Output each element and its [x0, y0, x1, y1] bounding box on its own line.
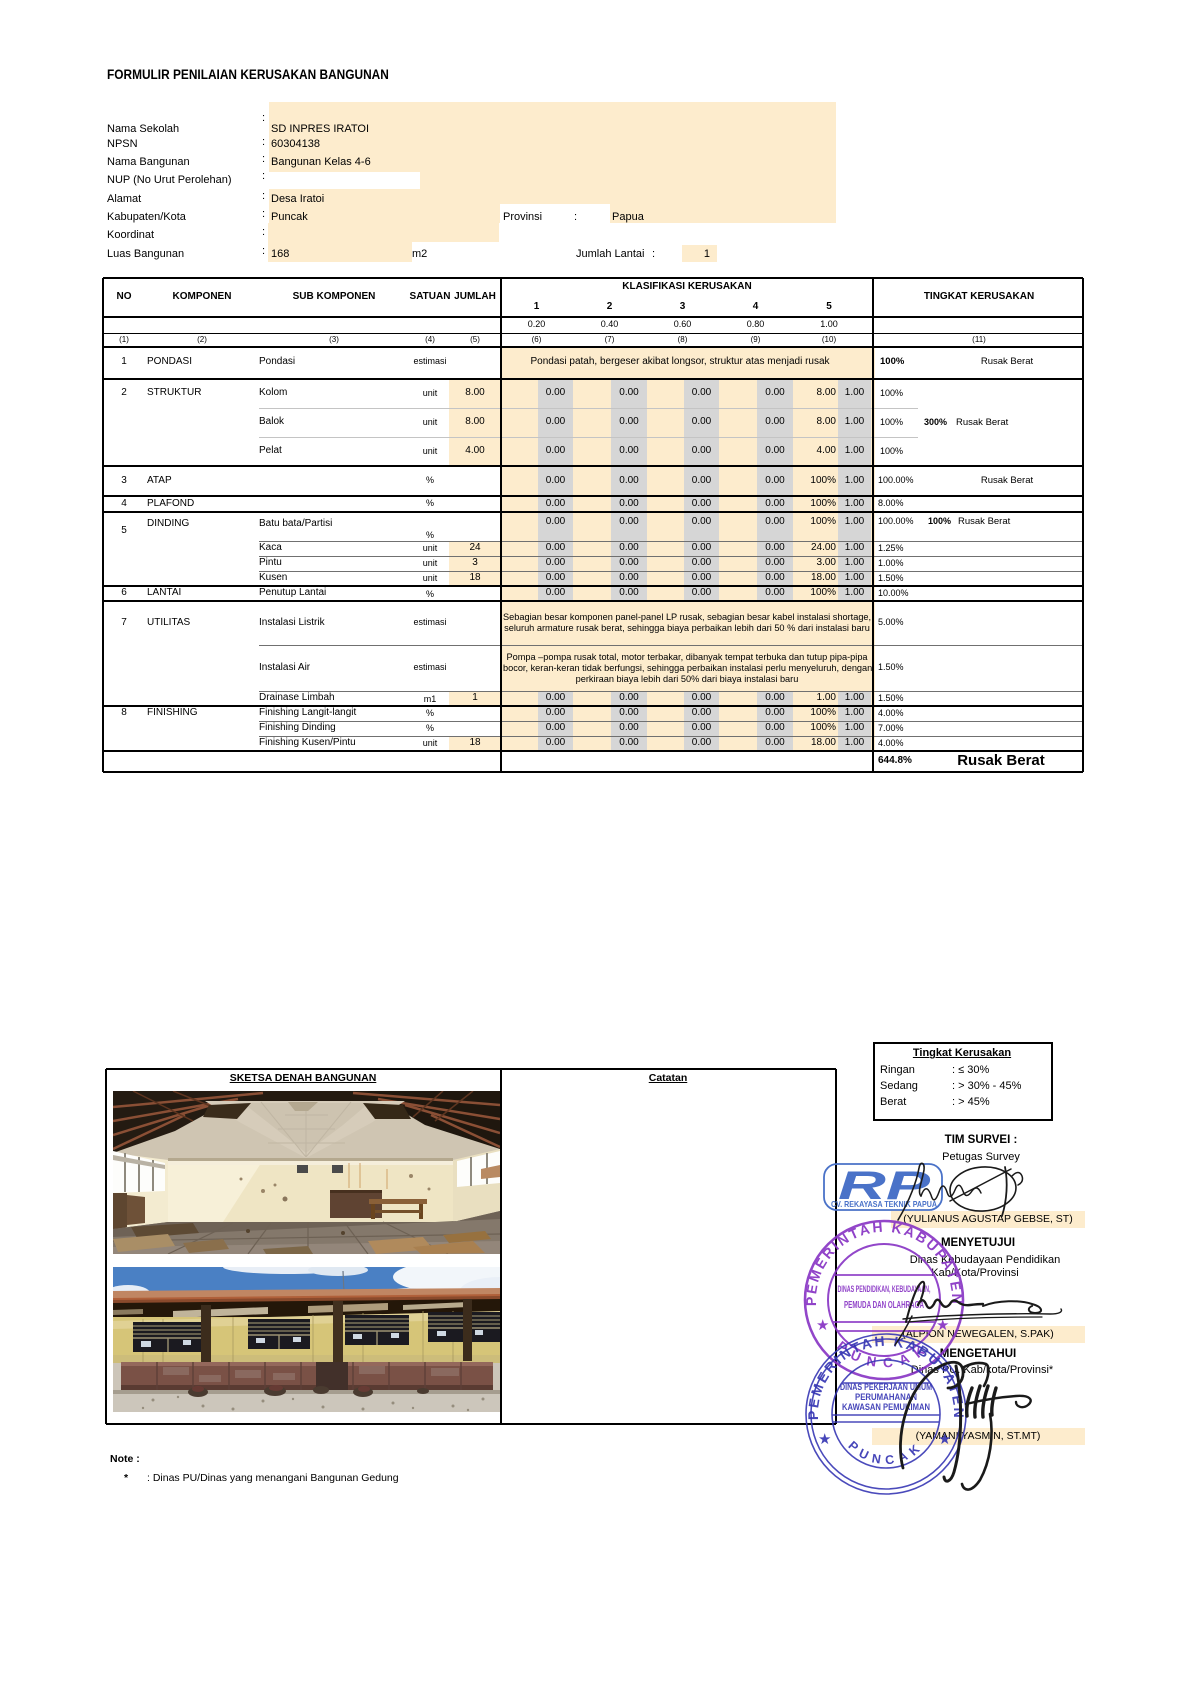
- svg-text:PUNCAK: PUNCAK: [845, 1438, 926, 1467]
- svg-text:CV. REKAYASA TEKNIK PAPUA: CV. REKAYASA TEKNIK PAPUA: [831, 1199, 937, 1209]
- svg-text:★: ★: [818, 1431, 831, 1448]
- svg-text:★: ★: [816, 1317, 829, 1334]
- svg-text:★: ★: [938, 1431, 951, 1448]
- svg-text:KAWASAN PEMUKIMAN: KAWASAN PEMUKIMAN: [842, 1402, 930, 1413]
